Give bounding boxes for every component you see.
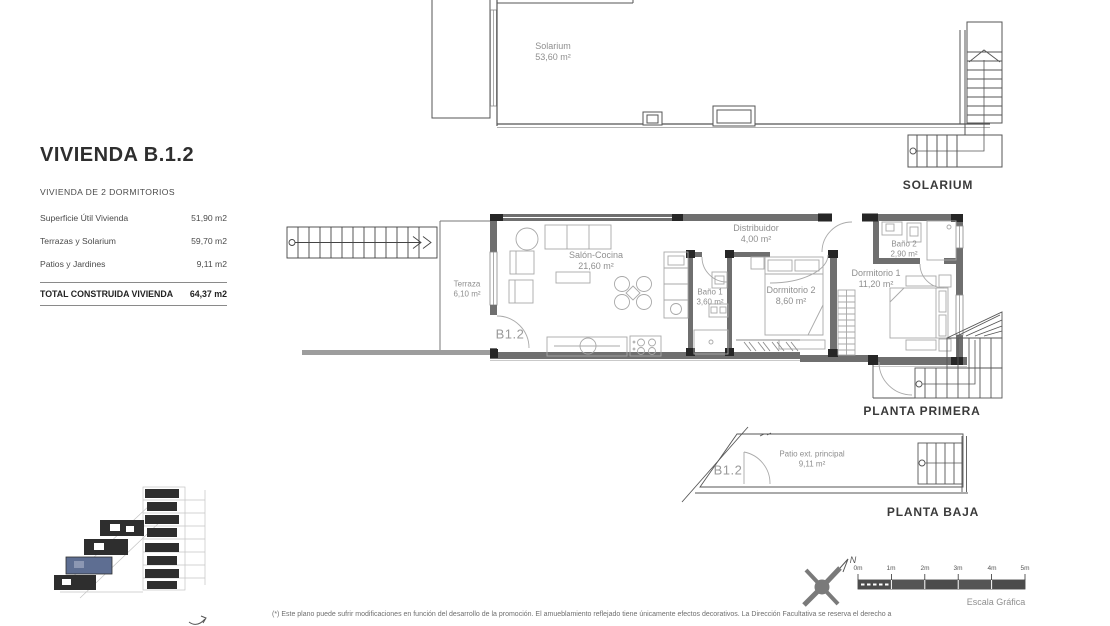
bath1-fixtures	[694, 272, 728, 354]
scale-tick: 2m	[920, 565, 929, 572]
room-label-patio: Patio ext. principal 9,11 m²	[779, 449, 844, 468]
room-label-terraza: Terraza 6,10 m²	[453, 279, 480, 298]
dining-set	[615, 277, 652, 310]
north-curl-arrow	[189, 619, 205, 624]
room-label-solarium: Solarium 53,60 m²	[535, 41, 571, 63]
scale-tick: 4m	[987, 565, 996, 572]
unit-code-label-primera: B1.2	[496, 327, 525, 342]
unit-code-label-baja: B1.2	[714, 463, 743, 478]
side-table	[516, 228, 538, 250]
floorplan-sheet: VIVIENDA B.1.2 VIVIENDA DE 2 DORMITORIOS…	[0, 0, 1110, 626]
room-label-distribuidor: Distribuidor 4,00 m²	[733, 223, 779, 245]
scale-tick: 1m	[886, 565, 895, 572]
closet-column	[838, 290, 855, 355]
compass-icon	[804, 559, 848, 605]
floor-label-planta-primera: PLANTA PRIMERA	[863, 404, 980, 418]
room-label-bano-2: Baño 2 2,90 m²	[890, 239, 917, 258]
room-label-salon-cocina: Salón-Cocina 21,60 m²	[569, 250, 623, 272]
solarium-stair	[908, 22, 1002, 167]
scale-tick: 0m	[853, 565, 862, 572]
site-plan-inset	[54, 487, 206, 624]
kitchen-column	[664, 252, 688, 318]
highlighted-unit	[66, 557, 112, 574]
scale-tick: 3m	[953, 565, 962, 572]
access-stair-left	[287, 227, 437, 258]
armchair	[510, 251, 534, 274]
unit-walls	[490, 214, 967, 367]
footnote: (*) Este plano puede sufrir modificacion…	[272, 611, 891, 618]
room-label-dormitorio-1: Dormitorio 1 11,20 m²	[851, 268, 900, 290]
sofa	[545, 225, 611, 249]
solarium-plan	[432, 0, 1002, 167]
scale-tick: 5m	[1020, 565, 1029, 572]
floor-label-planta-baja: PLANTA BAJA	[887, 505, 979, 519]
scale-bar	[858, 574, 1025, 589]
armchair	[509, 280, 533, 303]
room-label-dormitorio-2: Dormitorio 2 8,60 m²	[766, 285, 815, 307]
floor-label-solarium: SOLARIUM	[903, 178, 973, 192]
room-label-bano-1: Baño 1 3,60 m²	[696, 287, 723, 306]
floorplan-drawing	[0, 0, 1110, 626]
north-label: N	[850, 555, 857, 565]
scale-caption: Escala Gráfica	[967, 597, 1026, 607]
entry-stair-right	[873, 312, 1002, 398]
coffee-table	[556, 272, 590, 283]
